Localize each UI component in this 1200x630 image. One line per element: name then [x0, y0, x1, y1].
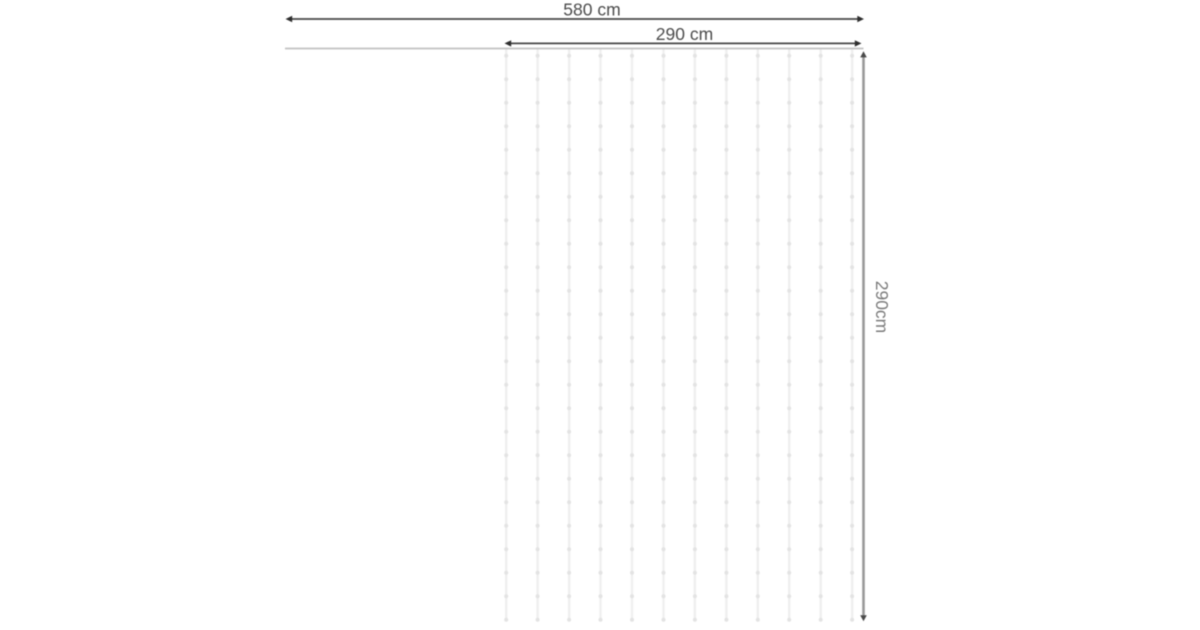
svg-text:580 cm: 580 cm	[563, 0, 620, 20]
svg-text:290 cm: 290 cm	[656, 24, 713, 44]
svg-text:290cm: 290cm	[872, 281, 892, 334]
